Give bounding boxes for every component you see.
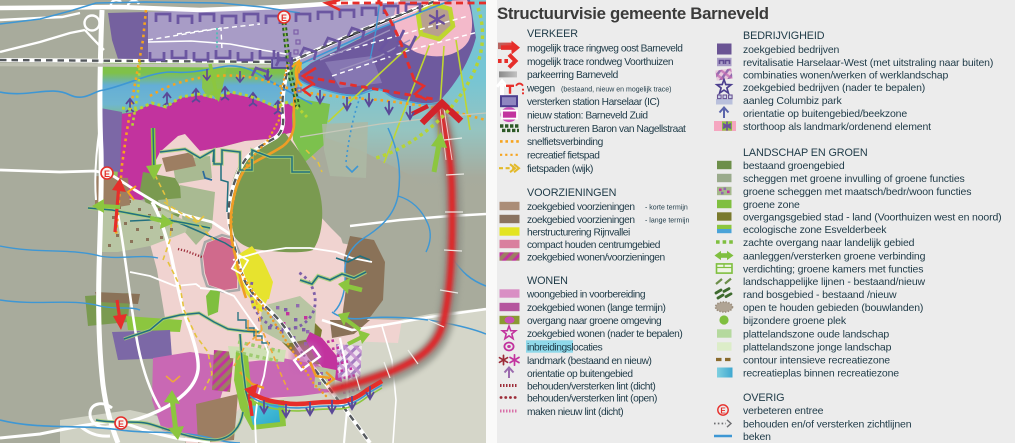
- svg-text:LANDSCHAP EN GROEN: LANDSCHAP EN GROEN: [743, 147, 868, 159]
- svg-text:zoekgebied voorzieningen: zoekgebied voorzieningen: [527, 202, 635, 213]
- svg-text:recreatief fietspad: recreatief fietspad: [527, 151, 600, 162]
- svg-text:plattelandszone oude landschap: plattelandszone oude landschap: [743, 328, 889, 340]
- svg-text:behouden/versterken lint (open: behouden/versterken lint (open): [527, 393, 657, 404]
- svg-text:open te houden gebieden (bouwl: open te houden gebieden (bouwlanden): [743, 302, 923, 314]
- svg-text:compact houden centrumgebied: compact houden centrumgebied: [527, 240, 661, 251]
- svg-text:rand bosgebied - bestaand /nie: rand bosgebied - bestaand /nieuw: [743, 289, 897, 301]
- svg-text:overgangsgebied stad - land (V: overgangsgebied stad - land (Voorthuizen…: [743, 211, 1002, 223]
- svg-text:groene zone: groene zone: [743, 199, 800, 211]
- svg-text:zachte overgang naar landelijk: zachte overgang naar landelijk gebied: [743, 237, 915, 249]
- svg-text:wegen: wegen: [526, 84, 555, 95]
- svg-text:VOORZIENINGEN: VOORZIENINGEN: [527, 187, 616, 199]
- svg-text:woongebied in voorbereiding: woongebied in voorbereiding: [526, 289, 646, 300]
- svg-text:E: E: [118, 419, 124, 429]
- svg-text:bijzondere groene plek: bijzondere groene plek: [743, 315, 847, 327]
- svg-text:fietspaden (wijk): fietspaden (wijk): [527, 164, 593, 175]
- svg-text:behouden en/of versterken zich: behouden en/of versterken zichtlijnen: [743, 418, 912, 430]
- svg-text:beken: beken: [743, 431, 771, 443]
- svg-text:VERKEER: VERKEER: [527, 28, 578, 40]
- svg-text:revitalisatie Harselaar-West (: revitalisatie Harselaar-West (met uitstr…: [743, 57, 993, 69]
- svg-text:mogelijk trace ringweg oost Ba: mogelijk trace ringweg oost Barneveld: [527, 43, 683, 54]
- svg-text:BEDRIJVIGHEID: BEDRIJVIGHEID: [743, 30, 825, 42]
- svg-text:zoekgebied bedrijven: zoekgebied bedrijven: [743, 44, 840, 56]
- svg-text:E: E: [281, 13, 287, 23]
- svg-text:orientatie op buitengebied/bee: orientatie op buitengebied/beekzone: [743, 108, 907, 120]
- svg-text:zoekgebied bedrijven (nader te: zoekgebied bedrijven (nader te bepalen): [743, 82, 925, 94]
- svg-text:mogelijk trace rondweg Voorthu: mogelijk trace rondweg Voorthuizen: [527, 57, 673, 68]
- svg-text:landschappelijke lijnen - best: landschappelijke lijnen - bestaand/nieuw: [743, 276, 926, 288]
- svg-text:herstructurering Rijnvallei: herstructurering Rijnvallei: [527, 227, 630, 238]
- svg-text:OVERIG: OVERIG: [743, 392, 784, 404]
- svg-text:WONEN: WONEN: [527, 275, 568, 287]
- svg-text:inbreidingslocaties: inbreidingslocaties: [527, 342, 603, 353]
- svg-text:verdichting; groene kamers met: verdichting; groene kamers met functies: [743, 263, 923, 275]
- svg-text:landmark (bestaand en nieuw): landmark (bestaand en nieuw): [527, 356, 652, 367]
- svg-text:E: E: [104, 169, 110, 179]
- svg-text:nieuw station: Barneveld Zuid: nieuw station: Barneveld Zuid: [527, 110, 648, 121]
- svg-text:zoekgebied wonen (nader te bep: zoekgebied wonen (nader te bepalen): [527, 329, 682, 340]
- svg-text:ecologische zone Esvelderbeek: ecologische zone Esvelderbeek: [743, 224, 887, 236]
- svg-text:storthoop als landmark/ordenen: storthoop als landmark/ordenend element: [743, 121, 931, 133]
- svg-text:(bestaand, nieuw en mogelijk t: (bestaand, nieuw en mogelijk trace): [561, 86, 672, 93]
- svg-text:bestaand groengebied: bestaand groengebied: [743, 160, 845, 172]
- svg-text:plattelandszone jonge landscha: plattelandszone jonge landschap: [743, 341, 892, 353]
- svg-text:behouden/versterken lint (dich: behouden/versterken lint (dicht): [527, 381, 655, 392]
- svg-text:zoekgebied wonen (lange termij: zoekgebied wonen (lange termijn): [527, 303, 666, 314]
- svg-text:E: E: [720, 406, 726, 415]
- svg-text:versterken station Harselaar (: versterken station Harselaar (IC): [527, 97, 659, 108]
- svg-text:zoekgebied wonen/voorzieningen: zoekgebied wonen/voorzieningen: [527, 252, 665, 263]
- svg-text:overgang naar groene omgeving: overgang naar groene omgeving: [527, 316, 662, 327]
- svg-text:aanleg Columbiz park: aanleg Columbiz park: [743, 95, 842, 107]
- svg-text:herstructureren Baron van Nage: herstructureren Baron van Nagellstraat: [527, 124, 686, 135]
- svg-text:- korte termijn: - korte termijn: [645, 205, 688, 212]
- svg-text:parkeerring Barneveld: parkeerring Barneveld: [527, 70, 619, 81]
- svg-text:verbeteren entree: verbeteren entree: [743, 405, 824, 417]
- svg-text:combinaties wonen/werken of we: combinaties wonen/werken of werklandscha…: [743, 69, 948, 81]
- svg-text:groene scheggen met maatsch/be: groene scheggen met maatsch/bedr/woon fu…: [743, 186, 971, 198]
- svg-text:contour intensieve recreatiezo: contour intensieve recreatiezone: [743, 354, 890, 366]
- svg-text:Structuurvisie gemeente Barnev: Structuurvisie gemeente Barneveld: [497, 4, 769, 23]
- svg-text:snelfietsverbinding: snelfietsverbinding: [527, 137, 604, 148]
- svg-text:maken nieuw lint (dicht): maken nieuw lint (dicht): [527, 407, 623, 418]
- svg-text:- lange termijn: - lange termijn: [645, 218, 689, 225]
- svg-text:scheggen met groene invulling: scheggen met groene invulling of groene …: [743, 173, 965, 185]
- svg-text:orientatie op buitengebied: orientatie op buitengebied: [527, 369, 633, 380]
- svg-text:recreatieplas binnen recreatie: recreatieplas binnen recreatiezone: [743, 367, 899, 379]
- svg-text:zoekgebied voorzieningen: zoekgebied voorzieningen: [527, 215, 635, 226]
- svg-text:aanleggen/versterken groene ve: aanleggen/versterken groene verbinding: [743, 250, 926, 262]
